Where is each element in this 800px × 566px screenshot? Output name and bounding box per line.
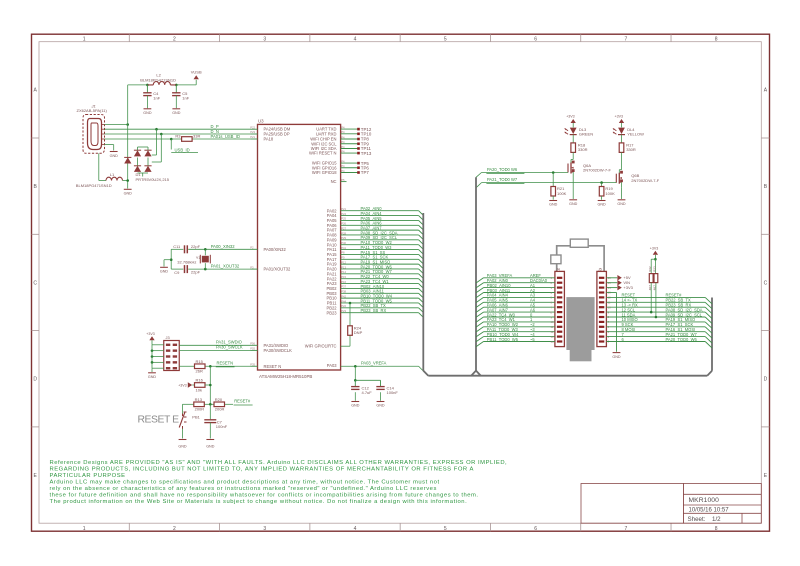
svg-text:U3: U3	[258, 119, 264, 124]
svg-text:C9: C9	[174, 270, 180, 275]
svg-text:P23: P23	[250, 130, 255, 134]
svg-text:1: 1	[83, 526, 86, 532]
svg-text:RESET E: RESET E	[138, 415, 180, 426]
svg-text:C11: C11	[173, 244, 181, 249]
svg-text:RESET#: RESET#	[234, 399, 251, 404]
svg-text:RESETN: RESETN	[217, 361, 234, 366]
svg-text:rely on the absence or charact: rely on the absence or characteristics o…	[50, 486, 437, 492]
svg-text:P22: P22	[250, 125, 255, 129]
svg-text:P21: P21	[341, 207, 346, 211]
svg-text:ATSAMW25H18-MR510PB: ATSAMW25H18-MR510PB	[259, 374, 312, 379]
svg-text:P4: P4	[341, 125, 345, 129]
svg-text:R13: R13	[195, 397, 203, 402]
svg-text:33R: 33R	[193, 134, 200, 139]
svg-text:+3V3: +3V3	[615, 115, 624, 119]
svg-text:GND: GND	[569, 202, 578, 206]
svg-text:GND: GND	[376, 404, 385, 408]
svg-text:PARTICULAR PURPOSE: PARTICULAR PURPOSE	[50, 473, 126, 479]
svg-text:these for future definition an: these for future definition and shall ha…	[50, 492, 479, 498]
svg-text:13: 13	[551, 335, 554, 339]
svg-text:MKR1000: MKR1000	[689, 497, 720, 504]
svg-text:GND: GND	[617, 202, 626, 206]
svg-text:6: 6	[534, 526, 537, 532]
svg-text:P16: P16	[341, 280, 346, 284]
svg-text:PA20_TOD0_W6: PA20_TOD0_W6	[666, 337, 698, 342]
svg-text:VUSB: VUSB	[191, 70, 202, 75]
svg-text:GND: GND	[143, 111, 152, 115]
svg-text:The product information on the: The product information on the Web Site …	[50, 499, 468, 505]
svg-text:R15: R15	[196, 359, 204, 364]
svg-text:7: 7	[624, 526, 627, 532]
svg-text:Sheet:: Sheet:	[688, 516, 706, 523]
svg-text:P4: P4	[341, 145, 345, 149]
svg-text:PA01s_USB_ID: PA01s_USB_ID	[211, 134, 240, 139]
svg-text:USB_ID: USB_ID	[175, 147, 190, 152]
svg-text:PRTR5V0U2X,215: PRTR5V0U2X,215	[136, 177, 170, 182]
svg-text:10: 10	[551, 320, 554, 324]
svg-text:Y1: Y1	[196, 255, 202, 260]
svg-text:GND: GND	[172, 111, 181, 115]
svg-text:P9: P9	[341, 256, 345, 260]
svg-text:P22: P22	[341, 304, 346, 308]
svg-text:PA03: PA03	[327, 363, 337, 368]
svg-text:14: 14	[551, 340, 554, 344]
svg-text:P44: P44	[341, 299, 346, 303]
svg-text:TP13: TP13	[361, 151, 372, 156]
svg-text:+3V3: +3V3	[146, 332, 155, 336]
svg-text:Arduino LLC may make changes t: Arduino LLC may make changes to specific…	[50, 479, 440, 485]
svg-text:PA01_XOUT32: PA01_XOUT32	[211, 264, 240, 269]
svg-text:2N7002DW-7-F: 2N7002DW-7-F	[583, 168, 611, 173]
svg-text:PA03_VREFA: PA03_VREFA	[361, 361, 387, 366]
svg-text:PB1: PB1	[192, 414, 200, 419]
svg-text:P13: P13	[341, 265, 346, 269]
svg-text:P12: P12	[341, 260, 346, 264]
svg-text:P5: P5	[341, 178, 345, 182]
svg-text:1nF: 1nF	[182, 95, 189, 100]
svg-text:P4: P4	[341, 169, 345, 173]
svg-text:~5: ~5	[530, 337, 535, 342]
svg-text:26R: 26R	[196, 369, 203, 374]
svg-text:8: 8	[715, 36, 718, 42]
svg-text:R23: R23	[653, 266, 657, 272]
svg-text:P21: P21	[250, 135, 255, 139]
svg-text:Reference Designs ARE PROVIDED: Reference Designs ARE PROVIDED "AS IS" A…	[50, 460, 508, 466]
svg-text:P24: P24	[341, 212, 346, 216]
svg-text:P42: P42	[341, 294, 346, 298]
svg-text:GND: GND	[597, 203, 606, 207]
svg-text:R20: R20	[215, 397, 223, 402]
svg-text:PA00_XIN32: PA00_XIN32	[211, 244, 236, 249]
svg-text:J5: J5	[598, 267, 602, 271]
svg-text:+3V3: +3V3	[623, 285, 633, 290]
svg-text:330R: 330R	[626, 147, 636, 152]
svg-text:GND: GND	[178, 444, 187, 448]
svg-text:P26: P26	[341, 222, 346, 226]
svg-text:P4: P4	[341, 164, 345, 168]
svg-text:+3V3: +3V3	[566, 115, 575, 119]
svg-text:2N7002DW-7-F: 2N7002DW-7-F	[631, 178, 659, 183]
svg-text:RESET N: RESET N	[264, 364, 282, 369]
svg-text:BLM18PG471SN1D: BLM18PG471SN1D	[140, 78, 176, 83]
svg-text:P4: P4	[341, 135, 345, 139]
svg-text:P14: P14	[341, 270, 346, 274]
svg-text:ZX62AB-5PA(11): ZX62AB-5PA(11)	[77, 108, 108, 113]
svg-text:5: 5	[444, 526, 447, 532]
svg-text:10k: 10k	[196, 387, 202, 392]
svg-text:PA18: PA18	[264, 136, 274, 141]
svg-text:P23: P23	[341, 309, 346, 313]
svg-text:4: 4	[354, 36, 357, 42]
svg-text:R22: R22	[648, 266, 652, 272]
svg-text:22pF: 22pF	[191, 244, 201, 249]
svg-text:P3: P3	[250, 265, 254, 269]
svg-text:100K: 100K	[605, 191, 615, 196]
svg-text:1nF: 1nF	[153, 95, 160, 100]
svg-text:GND: GND	[160, 270, 169, 274]
svg-text:5: 5	[444, 36, 447, 42]
svg-text:22pF: 22pF	[191, 269, 201, 274]
svg-text:C: C	[33, 280, 37, 286]
svg-text:7: 7	[624, 36, 627, 42]
svg-text:2: 2	[173, 36, 176, 42]
svg-text:12: 12	[551, 330, 554, 334]
svg-text:PA21_TOD0 W7: PA21_TOD0 W7	[487, 177, 518, 182]
svg-text:GREEN: GREEN	[579, 131, 593, 136]
svg-text:TP7: TP7	[361, 170, 370, 175]
svg-text:3: 3	[263, 36, 266, 42]
svg-text:PB23_SB_RX: PB23_SB_RX	[361, 308, 387, 313]
svg-text:8: 8	[715, 526, 718, 532]
svg-text:PA30_SWCLK: PA30_SWCLK	[216, 345, 243, 350]
svg-text:100K: 100K	[557, 191, 567, 196]
svg-text:P38: P38	[341, 290, 346, 294]
svg-text:P4: P4	[341, 149, 345, 153]
svg-text:P4: P4	[341, 159, 345, 163]
svg-text:4K7: 4K7	[648, 285, 652, 291]
svg-text:100nF: 100nF	[216, 424, 228, 429]
svg-text:WIFI RESET N: WIFI RESET N	[309, 151, 336, 156]
svg-text:6: 6	[534, 36, 537, 42]
svg-text:200R: 200R	[215, 407, 225, 412]
svg-text:PA20_TOD0 W6: PA20_TOD0 W6	[487, 167, 518, 172]
svg-text:4.7uF: 4.7uF	[362, 390, 373, 395]
svg-text:P27: P27	[341, 226, 346, 230]
svg-text:PB23: PB23	[326, 310, 337, 315]
svg-text:P8: P8	[341, 251, 345, 255]
svg-text:P28: P28	[341, 231, 346, 235]
svg-text:1: 1	[83, 36, 86, 42]
svg-text:PA01/XOUT32: PA01/XOUT32	[264, 267, 291, 272]
svg-text:P40: P40	[341, 241, 346, 245]
svg-text:4: 4	[354, 526, 357, 532]
svg-text:YELLOW: YELLOW	[627, 131, 644, 136]
svg-text:GND: GND	[124, 192, 133, 196]
svg-text:GND: GND	[549, 203, 558, 207]
svg-text:J3: J3	[166, 335, 170, 340]
svg-text:REGARDING PRODUCTS, INCLUDING: REGARDING PRODUCTS, INCLUDING BUT NOT LI…	[50, 466, 474, 472]
svg-text:BLM18PG471SN1D: BLM18PG471SN1D	[76, 183, 112, 188]
svg-text:100nF: 100nF	[387, 390, 399, 395]
svg-text:P4: P4	[341, 140, 345, 144]
svg-text:2: 2	[173, 526, 176, 532]
svg-text:PA00/XIN32: PA00/XIN32	[264, 247, 287, 252]
svg-text:NC: NC	[331, 179, 337, 184]
svg-text:P15: P15	[341, 275, 346, 279]
svg-text:P29: P29	[341, 236, 346, 240]
svg-text:P35: P35	[250, 362, 255, 366]
svg-text:4K7: 4K7	[653, 285, 657, 291]
svg-text:P4: P4	[341, 130, 345, 134]
svg-text:P2: P2	[250, 246, 254, 250]
svg-text:WIFI GPIO18: WIFI GPIO18	[312, 170, 337, 175]
svg-text:R3: R3	[175, 134, 181, 139]
svg-text:DNP: DNP	[354, 330, 363, 335]
svg-text:10/05/16 10:57: 10/05/16 10:57	[689, 507, 730, 513]
svg-text:32.768kHz: 32.768kHz	[177, 259, 196, 264]
svg-text:PB11_TOD0_W5: PB11_TOD0_W5	[487, 337, 519, 342]
svg-text:C: C	[764, 280, 768, 286]
svg-text:J4: J4	[556, 267, 560, 271]
svg-text:GND: GND	[612, 355, 621, 359]
svg-text:GND: GND	[148, 375, 157, 379]
svg-text:WIFI GPIO1/RTC: WIFI GPIO1/RTC	[305, 344, 337, 349]
svg-text:P55: P55	[250, 347, 255, 351]
svg-text:P56: P56	[250, 342, 255, 346]
svg-text:1/2: 1/2	[712, 516, 721, 523]
svg-text:D: D	[764, 377, 768, 383]
svg-text:P25: P25	[341, 217, 346, 221]
svg-text:+3V3: +3V3	[178, 383, 187, 387]
svg-text:GND: GND	[351, 404, 360, 408]
svg-text:D: D	[33, 377, 37, 383]
svg-text:GND: GND	[206, 444, 215, 448]
svg-text:GND: GND	[110, 154, 119, 158]
svg-text:R16: R16	[196, 378, 204, 383]
svg-text:P41: P41	[341, 246, 346, 250]
svg-text:PA30/SWDCLK: PA30/SWDCLK	[264, 348, 293, 353]
svg-text:330R: 330R	[578, 147, 588, 152]
svg-text:3: 3	[263, 526, 266, 532]
svg-text:+3V3: +3V3	[650, 246, 659, 250]
svg-text:P37: P37	[341, 285, 346, 289]
svg-text:200R: 200R	[195, 407, 205, 412]
svg-text:L1: L1	[110, 172, 115, 177]
